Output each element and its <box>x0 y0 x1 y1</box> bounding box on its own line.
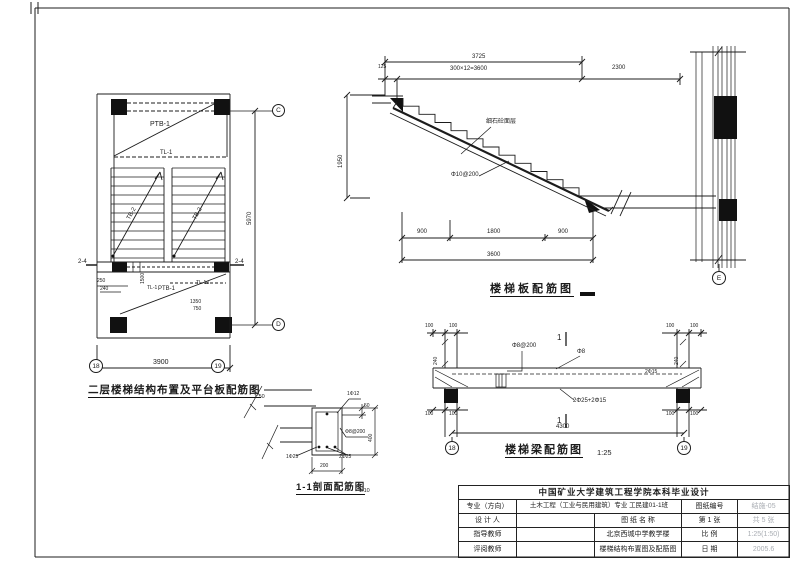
value-scale: 1:25(1:50) <box>738 528 790 542</box>
value-project-name: 北京西城中学教学楼 <box>595 528 682 542</box>
dim-100-br2: 100 <box>690 412 698 417</box>
grid-bubble-18-beam: 18 <box>445 441 459 455</box>
dim-section-total: 3725 <box>472 54 485 60</box>
label-bar-top: Φ8 <box>577 349 585 355</box>
dim-240-right: 240 <box>675 357 680 365</box>
title-university: 中国矿业大学建筑工程学院本科毕业设计 <box>459 486 790 500</box>
grid-bubble-18: 18 <box>89 359 103 373</box>
dim-750: 750 <box>193 307 201 312</box>
dim-240-left: 240 <box>434 357 439 365</box>
dim-100-tr2: 100 <box>690 324 698 329</box>
note-finish-layer: 细石砼面层 <box>486 119 516 125</box>
advisor-signature-cell <box>517 528 595 542</box>
grid-bubble-19-beam: 19 <box>677 441 691 455</box>
stair-section-linework <box>344 56 716 296</box>
dim-100-tl1: 100 <box>425 324 433 329</box>
section-cut-label-left: 2-4 <box>78 259 87 265</box>
value-pages: 共 5 张 <box>738 514 790 528</box>
caption-beam: 楼梯梁配筋图 <box>505 445 583 458</box>
scale-detail: 1:10 <box>359 489 370 495</box>
dim-section-2300: 2300 <box>612 65 625 71</box>
scale-plan: 1:50 <box>254 395 265 401</box>
dim-250: 250 <box>97 279 105 284</box>
dim-1350: 1350 <box>190 300 201 305</box>
dim-section-900a: 900 <box>417 229 427 235</box>
label-stirrup: Φ8@200 <box>512 343 536 349</box>
dim-100-br1: 100 <box>666 412 674 417</box>
cut-mark-1-top: 1 <box>557 334 561 342</box>
label-date: 日 期 <box>682 542 738 558</box>
dim-detail-50: 50 <box>364 404 370 409</box>
dim-plan-height: 5970 <box>247 212 253 225</box>
label-stair-beam-top: TL-1 <box>160 150 172 156</box>
title-block: 中国矿业大学建筑工程学院本科毕业设计 专业（方向） 土木工程（工业与民用建筑）专… <box>458 485 790 558</box>
label-bar-bottom: 2Φ25+2Φ15 <box>573 398 606 404</box>
dim-1500: 1500 <box>141 273 146 284</box>
caption-plan: 二层楼梯结构布置及平台板配筋图 <box>88 385 261 398</box>
drawing-sheet: PTB-1 TL-1 TB-2 TB-2 2-4 2-4 TL-1 1500 P… <box>0 0 800 569</box>
grid-bubble-19: 19 <box>211 359 225 373</box>
label-detail-bar-top: 1Φ12 <box>347 392 359 397</box>
dim-section-steps: 300×12=3600 <box>450 66 487 72</box>
dim-section-125: 125 <box>378 65 386 70</box>
value-sheet-no: 结施-05 <box>738 500 790 514</box>
drawing-linework <box>0 0 800 569</box>
label-platform-slab-bottom: PTB-1 <box>158 286 175 292</box>
grid-bubble-d: D <box>272 318 285 331</box>
label-bar-haunch: 2Φ15 <box>645 370 657 375</box>
header-drawing-name: 图 纸 名 称 <box>595 514 682 528</box>
dim-section-1800: 1800 <box>487 229 500 235</box>
grid-bubble-e: E <box>712 271 726 285</box>
wall-section-linework <box>690 46 746 271</box>
value-date: 2005.6 <box>738 542 790 558</box>
label-stair-beam-mid: TL-1 <box>147 286 157 291</box>
label-designer: 设 计 人 <box>459 514 517 528</box>
label-detail-bar-br: 2Φ25 <box>339 455 351 460</box>
reviewer-signature-cell <box>517 542 595 558</box>
dim-plan-width: 3900 <box>153 359 169 366</box>
dim-section-900b: 900 <box>558 229 568 235</box>
section-cut-label-right: 2-4 <box>235 259 244 265</box>
dim-100-bl2: 100 <box>449 412 457 417</box>
grid-bubble-c: C <box>272 104 285 117</box>
label-major: 专业（方向） <box>459 500 517 514</box>
caption-stair-section: 楼梯板配筋图 <box>490 284 574 297</box>
dim-beam-span: 4300 <box>556 424 569 430</box>
note-slab-rebar: Φ10@200 <box>451 172 479 178</box>
dim-100-tr1: 100 <box>666 324 674 329</box>
designer-signature-cell <box>517 514 595 528</box>
caption-detail: 1-1剖面配筋图 <box>296 483 365 495</box>
scale-beam: 1:25 <box>597 449 612 457</box>
label-page: 第 1 张 <box>682 514 738 528</box>
dim-100-bl1: 100 <box>425 412 433 417</box>
dim-240: 240 <box>100 287 108 292</box>
label-detail-stirrup: Φ8@200 <box>345 430 365 435</box>
dim-detail-400: 400 <box>369 434 374 442</box>
dim-100-tl2: 100 <box>449 324 457 329</box>
label-detail-bar-bl: 1Φ25 <box>286 455 298 460</box>
label-scale: 比 例 <box>682 528 738 542</box>
label-stair-beam-bottom: TL-1a <box>196 281 209 286</box>
value-drawing-name: 楼梯结构布置图及配筋图 <box>595 542 682 558</box>
label-platform-slab-top: PTB-1 <box>150 121 170 128</box>
dim-detail-200: 200 <box>320 464 328 469</box>
label-advisor: 指导教师 <box>459 528 517 542</box>
dim-section-3600: 3600 <box>487 252 500 258</box>
label-sheet-no: 图纸编号 <box>682 500 738 514</box>
label-reviewer: 评阅教师 <box>459 542 517 558</box>
dim-section-height: 1950 <box>338 155 344 168</box>
value-major: 土木工程（工业与民用建筑）专业 工民建01-1班 <box>517 500 682 514</box>
plan-linework <box>86 94 272 372</box>
